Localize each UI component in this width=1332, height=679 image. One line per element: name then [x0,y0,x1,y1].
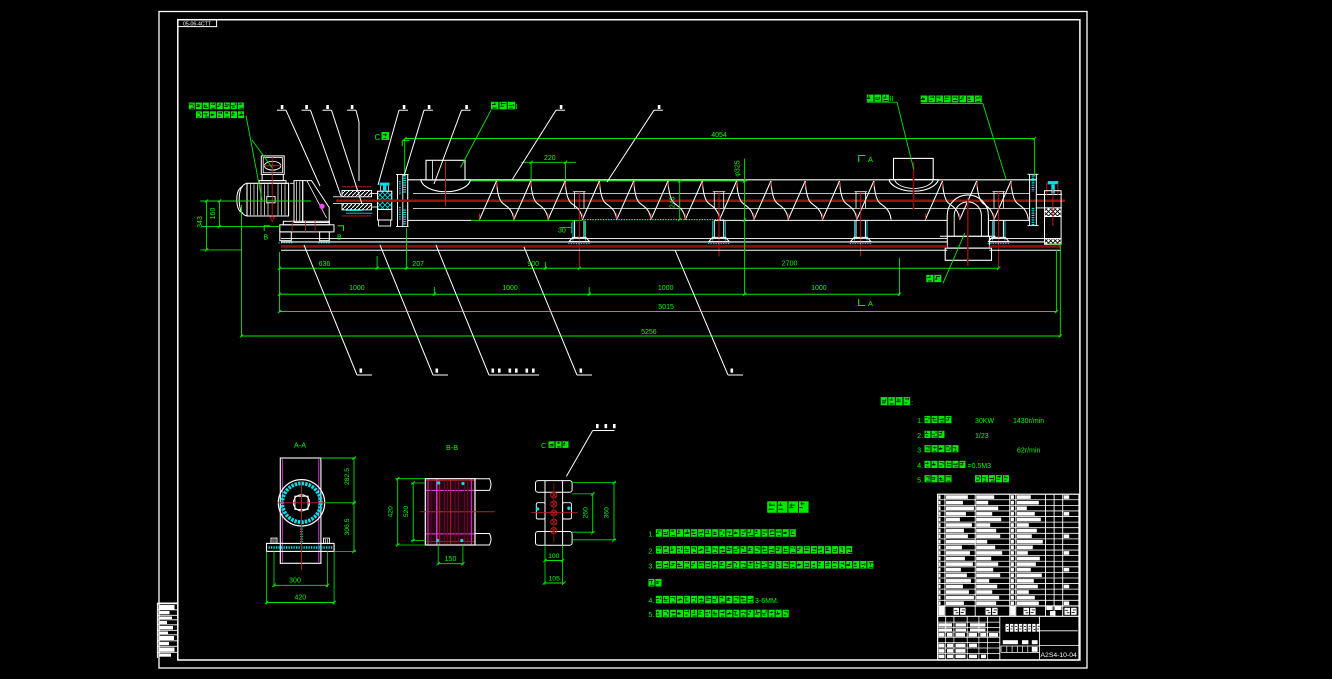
svg-text:A: A [868,299,873,308]
svg-text:1430r/min: 1430r/min [1013,418,1044,425]
svg-text:220: 220 [544,155,556,162]
svg-text:A: A [868,155,873,164]
svg-text:A-A: A-A [294,441,306,450]
svg-text:3.: 3. [917,445,923,454]
svg-text:C: C [541,441,546,450]
svg-text:2.: 2. [648,547,654,556]
svg-text:1/23: 1/23 [975,433,989,440]
svg-text:I: I [516,102,518,111]
svg-text:4.: 4. [648,596,654,605]
svg-text:3.: 3. [648,562,654,571]
svg-text:2.: 2. [917,431,923,440]
svg-text:φ325: φ325 [735,160,742,176]
svg-text:C: C [375,133,381,142]
svg-text:30KW: 30KW [975,418,994,425]
svg-text:2700: 2700 [782,260,798,267]
svg-text:260: 260 [582,507,589,519]
svg-text::: : [911,398,913,407]
svg-text:62r/min: 62r/min [1017,447,1040,454]
svg-text:160: 160 [210,208,217,220]
svg-text:B: B [264,235,269,242]
svg-text:420: 420 [388,506,395,518]
svg-text:1.: 1. [648,530,654,539]
svg-text:3-6MM.: 3-6MM. [755,598,779,605]
svg-text:243: 243 [669,196,676,208]
svg-text:900: 900 [527,261,539,268]
svg-text:207: 207 [412,261,424,268]
svg-text:100: 100 [548,553,560,560]
svg-text:1000: 1000 [658,285,674,292]
svg-text:520: 520 [403,506,410,518]
svg-text:1000: 1000 [349,285,365,292]
svg-text:306.5: 306.5 [344,518,351,535]
svg-text:5.: 5. [917,475,923,484]
svg-text:II: II [890,96,894,103]
svg-text:4.: 4. [917,461,923,470]
svg-text:105: 105 [549,575,561,582]
svg-text:5.: 5. [648,610,654,619]
svg-text:5015: 5015 [658,304,674,311]
svg-text:30: 30 [558,228,566,235]
svg-text:5256: 5256 [641,329,657,336]
svg-text:1.: 1. [917,416,923,425]
svg-text:05-06-4CTT: 05-06-4CTT [183,22,212,28]
svg-text:420: 420 [294,595,306,602]
svg-text:1000: 1000 [502,285,518,292]
svg-text:=0.5M3: =0.5M3 [968,463,992,470]
svg-text:636: 636 [319,261,331,268]
svg-text:4054: 4054 [711,132,727,139]
svg-text:1000: 1000 [811,285,827,292]
svg-text:A2S4-10-04: A2S4-10-04 [1041,652,1077,659]
svg-text:300: 300 [289,577,301,584]
svg-text:150: 150 [445,556,457,563]
svg-text:282.5: 282.5 [344,468,351,485]
svg-text:360: 360 [604,507,611,519]
svg-text:343: 343 [197,216,204,228]
svg-text:B-B: B-B [446,443,458,452]
svg-text:B: B [337,235,342,242]
